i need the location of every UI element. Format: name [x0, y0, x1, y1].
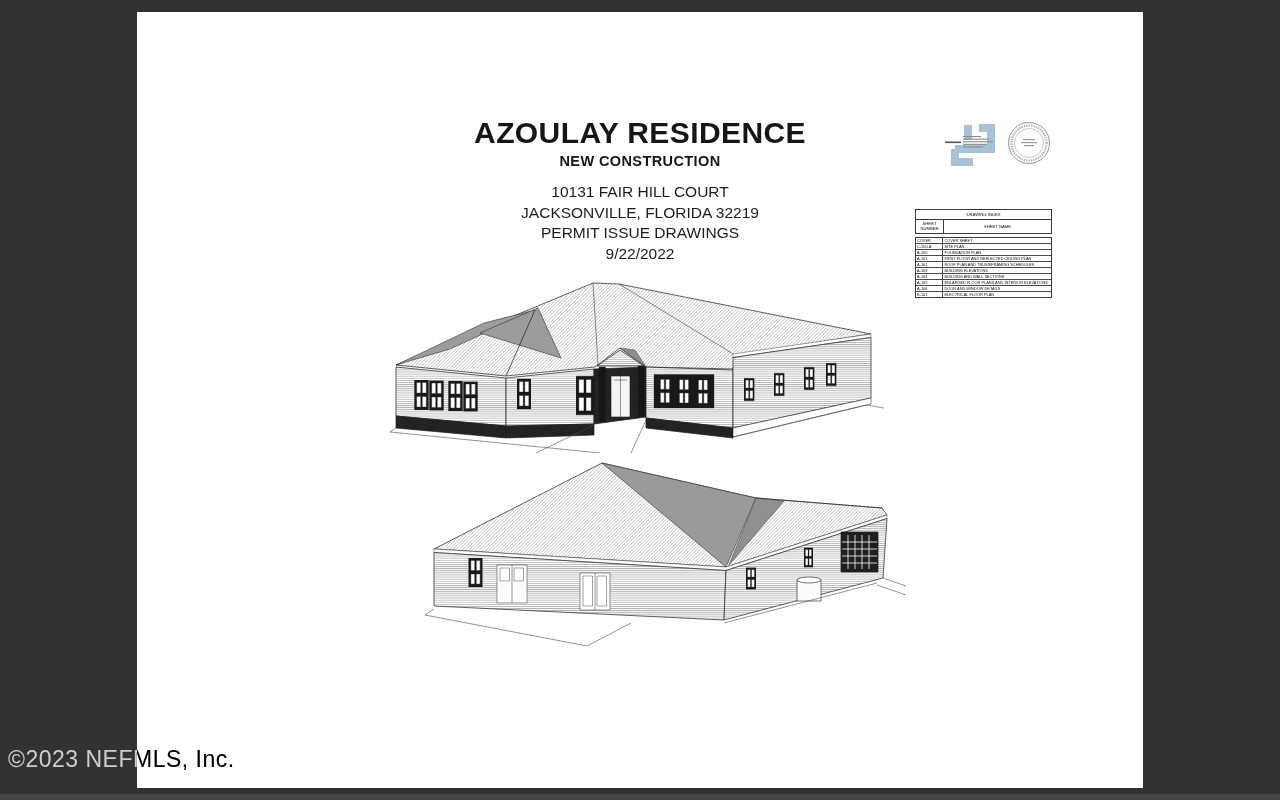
sheet-name: ELECTRICAL FLOOR PLAN	[943, 292, 1051, 297]
drawing-index-table: DRAWING INDEX SHEET NUMBER SHEET NAME CO…	[915, 209, 1052, 298]
sheet-number: A-102	[916, 262, 943, 267]
sheet-number: E-101	[916, 292, 943, 297]
sheet-number: A-106	[916, 286, 943, 291]
sheet-name: BUILDING AND WALL SECTIONS	[943, 274, 1051, 279]
table-row: E-101ELECTRICAL FLOOR PLAN	[916, 292, 1051, 297]
garage-door	[841, 532, 878, 572]
ac-unit	[797, 577, 821, 601]
sheet-name: COVER SHEET	[943, 238, 1051, 243]
column-header-sheet-number: SHEET NUMBER	[916, 220, 944, 233]
sheet-number: A-100	[916, 250, 943, 255]
sheet-name: SITE PLAN	[943, 244, 1051, 249]
photo-viewer-background: AZOULAY RESIDENCE NEW CONSTRUCTION 10131…	[0, 0, 1280, 800]
sheet-number: A-105	[916, 280, 943, 285]
drawing-index-header: DRAWING INDEX SHEET NUMBER SHEET NAME	[915, 209, 1052, 234]
sheet-name: ROOF PLAN AND TRUSS/FRAMING SCHEDULES	[943, 262, 1051, 267]
sheet-name: FIRST FLOOR AND REFLECTED CEILING PLAN	[943, 256, 1051, 261]
drawing-index-title: DRAWING INDEX	[916, 210, 1051, 220]
sheet-name: ENLARGED FLOOR PLANS AND INTERIOR ELEVAT…	[943, 280, 1051, 285]
column-header-sheet-name: SHEET NAME	[944, 220, 1051, 233]
cover-sheet-page: AZOULAY RESIDENCE NEW CONSTRUCTION 10131…	[137, 12, 1143, 788]
architect-seal-icon	[1006, 120, 1052, 166]
sheet-number: A-103	[916, 268, 943, 273]
bottom-strip	[0, 794, 1280, 800]
address-line-1: 10131 FAIR HILL COURT	[137, 182, 1143, 203]
rendering-front-perspective	[388, 277, 885, 453]
drawing-index-body: COVERCOVER SHEET C-100.ASITE PLAN A-100F…	[915, 237, 1052, 298]
architect-logo-icon	[943, 120, 999, 168]
sheet-number: COVER	[916, 238, 943, 243]
watermark: ©2023 NEFMLS, Inc.	[8, 746, 235, 773]
sheet-name: BUILDING ELEVATIONS	[943, 268, 1051, 273]
sheet-name: DOOR AND WINDOW DETAILS	[943, 286, 1051, 291]
rendering-rear-perspective	[417, 459, 906, 646]
sheet-number: C-100.A	[916, 244, 943, 249]
sheet-name: FOUNDATION PLAN	[943, 250, 1051, 255]
sheet-number: A-104	[916, 274, 943, 279]
sheet-number: A-101	[916, 256, 943, 261]
